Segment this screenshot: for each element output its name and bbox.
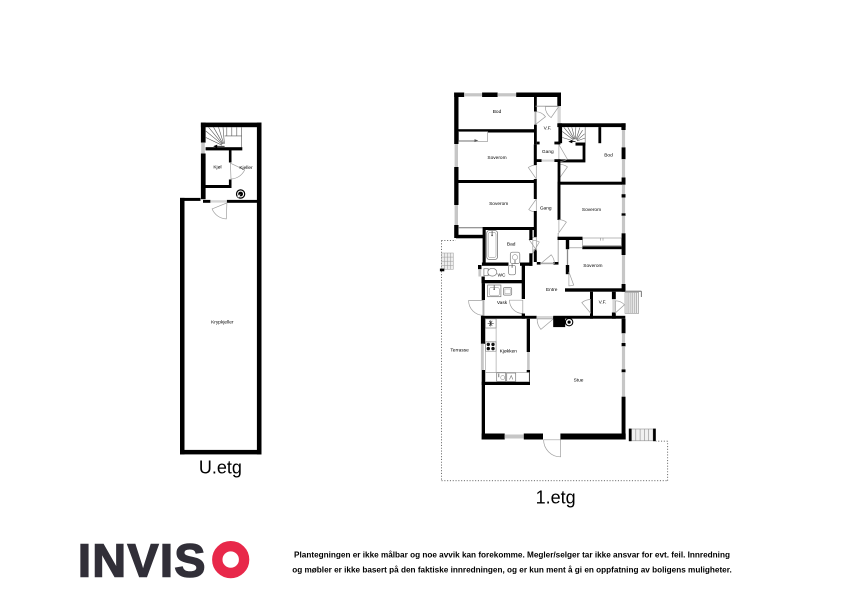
svg-text:V.F.: V.F. — [599, 300, 607, 306]
svg-text:Plantegningen er ikke målbar o: Plantegningen er ikke målbar og noe avvi… — [294, 550, 730, 560]
svg-text:Soverom: Soverom — [583, 263, 602, 269]
svg-text:V.F.: V.F. — [544, 125, 552, 131]
svg-text:Kjeller: Kjeller — [239, 165, 253, 171]
svg-text:Bod: Bod — [604, 153, 613, 159]
svg-text:Krypkjeller: Krypkjeller — [211, 319, 234, 325]
svg-text:INVIS: INVIS — [78, 534, 207, 586]
svg-text:Bod: Bod — [493, 109, 502, 115]
svg-text:og møbler er ikke basert på de: og møbler er ikke basert på den faktiske… — [292, 565, 731, 575]
svg-text:Terrasse: Terrasse — [450, 348, 469, 354]
svg-text:Entre: Entre — [546, 287, 558, 293]
svg-text:U.etg: U.etg — [199, 458, 242, 478]
svg-text:Gang: Gang — [540, 205, 552, 211]
svg-text:Soverom: Soverom — [487, 155, 506, 161]
svg-text:Bad: Bad — [507, 241, 516, 247]
svg-text:Kjøl: Kjøl — [213, 164, 221, 170]
svg-text:Gang: Gang — [542, 149, 554, 155]
svg-text:Vask: Vask — [497, 300, 508, 306]
svg-text:Stue: Stue — [574, 377, 584, 383]
svg-text:Kjøkken: Kjøkken — [500, 348, 518, 354]
svg-text:Soverom: Soverom — [582, 207, 601, 213]
svg-text:Soverom: Soverom — [489, 201, 508, 207]
svg-text:1.etg: 1.etg — [536, 488, 576, 508]
svg-text:WC: WC — [498, 273, 507, 279]
